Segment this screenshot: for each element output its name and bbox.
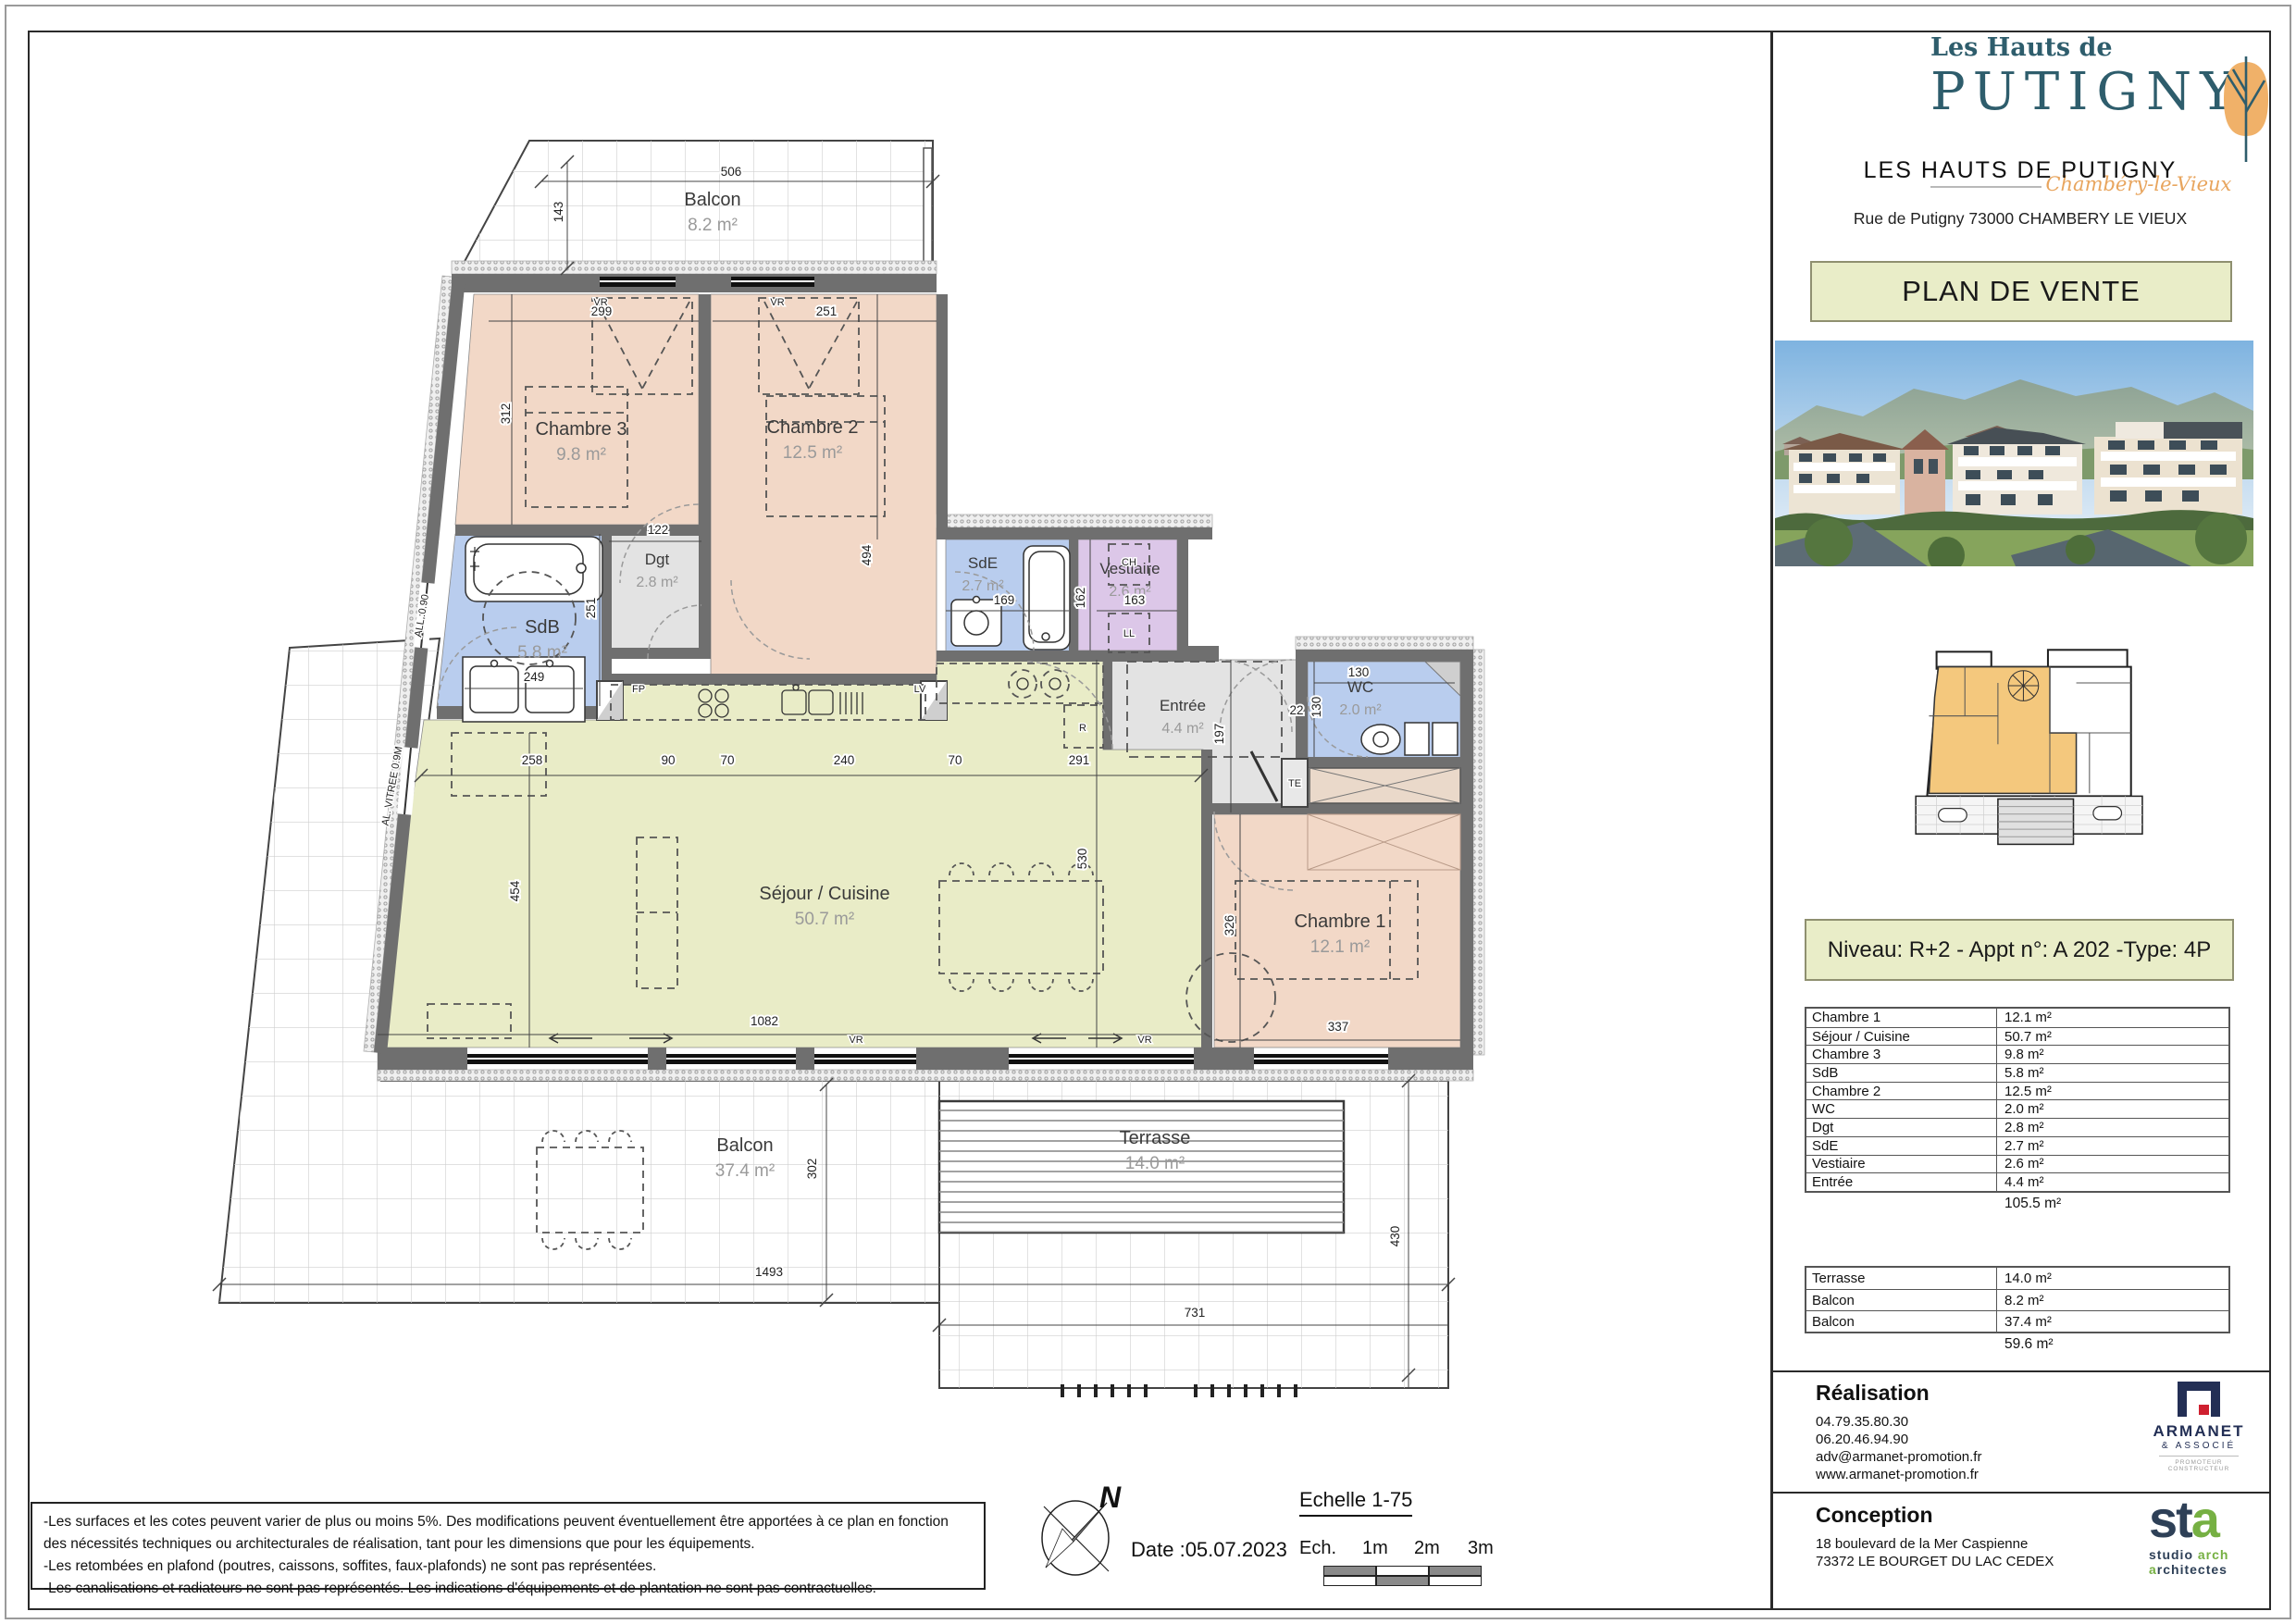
room-name-cell: Entrée — [1806, 1173, 1997, 1191]
table-row: Chambre 212.5 m² — [1806, 1082, 2228, 1100]
sta-big-navy: st — [2149, 1490, 2191, 1548]
room-area-cell: 12.5 m² — [1997, 1083, 2228, 1100]
surfaces-total: 105.5 m² — [2004, 1196, 2061, 1212]
room-area-cell: 12.1 m² — [1997, 1009, 2228, 1027]
armanet-tagline: PROMOTEUR CONSTRUCTEUR — [2143, 1459, 2254, 1472]
north-label: N — [1099, 1481, 1121, 1515]
table-row: Vestiaire2.6 m² — [1806, 1155, 2228, 1173]
room-name-cell: Vestiaire — [1806, 1156, 1997, 1173]
room-area-cell: 2.0 m² — [1997, 1100, 2228, 1118]
conception-address-2: 73372 LE BOURGET DU LAC CEDEX — [1816, 1554, 2054, 1569]
sta-l2-green: a — [2149, 1562, 2157, 1577]
room-name-cell: Chambre 3 — [1806, 1046, 1997, 1063]
room-name-cell: SdB — [1806, 1064, 1997, 1082]
sta-l2-navy: rchitectes — [2157, 1562, 2228, 1577]
room-area-cell: 37.4 m² — [1997, 1311, 2228, 1332]
plan-de-vente-sheet: Balcon8.2 m²Chambre 39.8 m²Chambre 212.5… — [0, 0, 2296, 1624]
room-area-cell: 14.0 m² — [1997, 1268, 2228, 1289]
sta-logo: sta studio arch architectes — [2149, 1494, 2251, 1577]
table-row: SdE2.7 m² — [1806, 1136, 2228, 1155]
scale-label-2m: 2m — [1414, 1538, 1440, 1559]
table-row: Chambre 112.1 m² — [1806, 1009, 2228, 1027]
disclaimer-line-3: -Les canalisations et radiateurs ne sont… — [43, 1578, 973, 1600]
table-row: Entrée4.4 m² — [1806, 1172, 2228, 1191]
conception-address-1: 18 boulevard de la Mer Caspienne — [1816, 1536, 2028, 1552]
logo-divider-line — [1930, 186, 2042, 188]
apartment-banner: Niveau: R+2 - Appt n°: A 202 -Type: 4P — [1805, 919, 2234, 981]
room-name-cell: Dgt — [1806, 1119, 1997, 1136]
email: adv@armanet-promotion.fr — [1816, 1449, 1981, 1465]
project-title: LES HAUTS DE PUTIGNY — [1770, 157, 2270, 184]
room-name-cell: Balcon — [1806, 1290, 1997, 1310]
room-area-cell: 2.6 m² — [1997, 1156, 2228, 1173]
site-key-plan — [1908, 640, 2191, 868]
table-row: Chambre 39.8 m² — [1806, 1045, 2228, 1063]
armanet-rule — [2159, 1456, 2239, 1457]
disclaimer-box: -Les surfaces et les cotes peuvent varie… — [31, 1502, 986, 1590]
logo-text-main: PUTIGNY — [1930, 62, 2242, 122]
website: www.armanet-promotion.fr — [1816, 1467, 1979, 1482]
table-row: Séjour / Cuisine50.7 m² — [1806, 1027, 2228, 1046]
scale-label-ech: Ech. — [1299, 1538, 1336, 1559]
scale-title: Echelle 1-75 — [1299, 1488, 1412, 1517]
scale-bar — [1323, 1566, 1482, 1586]
surfaces-table: Chambre 112.1 m²Séjour / Cuisine50.7 m²C… — [1805, 1007, 2230, 1193]
table-row: Dgt2.8 m² — [1806, 1118, 2228, 1136]
room-area-cell: 2.8 m² — [1997, 1119, 2228, 1136]
armanet-logo: ARMANET & ASSOCIÉ PROMOTEUR CONSTRUCTEUR — [2143, 1382, 2254, 1472]
armanet-mark-icon — [2178, 1382, 2220, 1417]
room-name-cell: Terrasse — [1806, 1268, 1997, 1289]
room-name-cell: SdE — [1806, 1137, 1997, 1155]
table-row: Balcon8.2 m² — [1806, 1289, 2228, 1310]
sta-big-green: a — [2191, 1490, 2218, 1548]
plan-de-vente-banner: PLAN DE VENTE — [1810, 261, 2232, 322]
disclaimer-line-2: -Les retombées en plafond (poutres, cais… — [43, 1556, 973, 1578]
room-name-cell: Balcon — [1806, 1311, 1997, 1332]
room-name-cell: Chambre 1 — [1806, 1009, 1997, 1027]
logo-tree-icon — [2216, 51, 2276, 171]
room-area-cell: 2.7 m² — [1997, 1137, 2228, 1155]
scale-label-3m: 3m — [1468, 1538, 1494, 1559]
phone-1: 04.79.35.80.30 — [1816, 1414, 1908, 1430]
armanet-sub: & ASSOCIÉ — [2143, 1441, 2254, 1451]
room-area-cell: 9.8 m² — [1997, 1046, 2228, 1063]
table-row: SdB5.8 m² — [1806, 1063, 2228, 1082]
table-row: WC2.0 m² — [1806, 1099, 2228, 1118]
phone-2: 06.20.46.94.90 — [1816, 1432, 1908, 1447]
sta-l1-green: arch — [2198, 1547, 2229, 1562]
sta-l1-navy: studio — [2149, 1547, 2198, 1562]
room-area-cell: 4.4 m² — [1997, 1173, 2228, 1191]
section-divider — [1770, 1370, 2270, 1372]
table-row: Terrasse14.0 m² — [1806, 1268, 2228, 1289]
room-name-cell: Chambre 2 — [1806, 1083, 1997, 1100]
room-area-cell: 5.8 m² — [1997, 1064, 2228, 1082]
exterior-table: Terrasse14.0 m²Balcon8.2 m²Balcon37.4 m² — [1805, 1266, 2230, 1333]
room-area-cell: 8.2 m² — [1997, 1290, 2228, 1310]
room-name-cell: Séjour / Cuisine — [1806, 1028, 1997, 1046]
scale-label-1m: 1m — [1362, 1538, 1388, 1559]
armanet-name: ARMANET — [2143, 1422, 2254, 1441]
room-area-cell: 50.7 m² — [1997, 1028, 2228, 1046]
room-name-cell: WC — [1806, 1100, 1997, 1118]
conception-heading: Conception — [1816, 1503, 1933, 1528]
project-address: Rue de Putigny 73000 CHAMBERY LE VIEUX — [1770, 209, 2270, 229]
disclaimer-line-1: -Les surfaces et les cotes peuvent varie… — [43, 1511, 973, 1556]
realisation-heading: Réalisation — [1816, 1381, 1930, 1406]
exterior-total: 59.6 m² — [2004, 1336, 2054, 1353]
date-label: Date :05.07.2023 — [1131, 1538, 1287, 1562]
project-render-photo — [1775, 341, 2253, 566]
table-row: Balcon37.4 m² — [1806, 1310, 2228, 1332]
